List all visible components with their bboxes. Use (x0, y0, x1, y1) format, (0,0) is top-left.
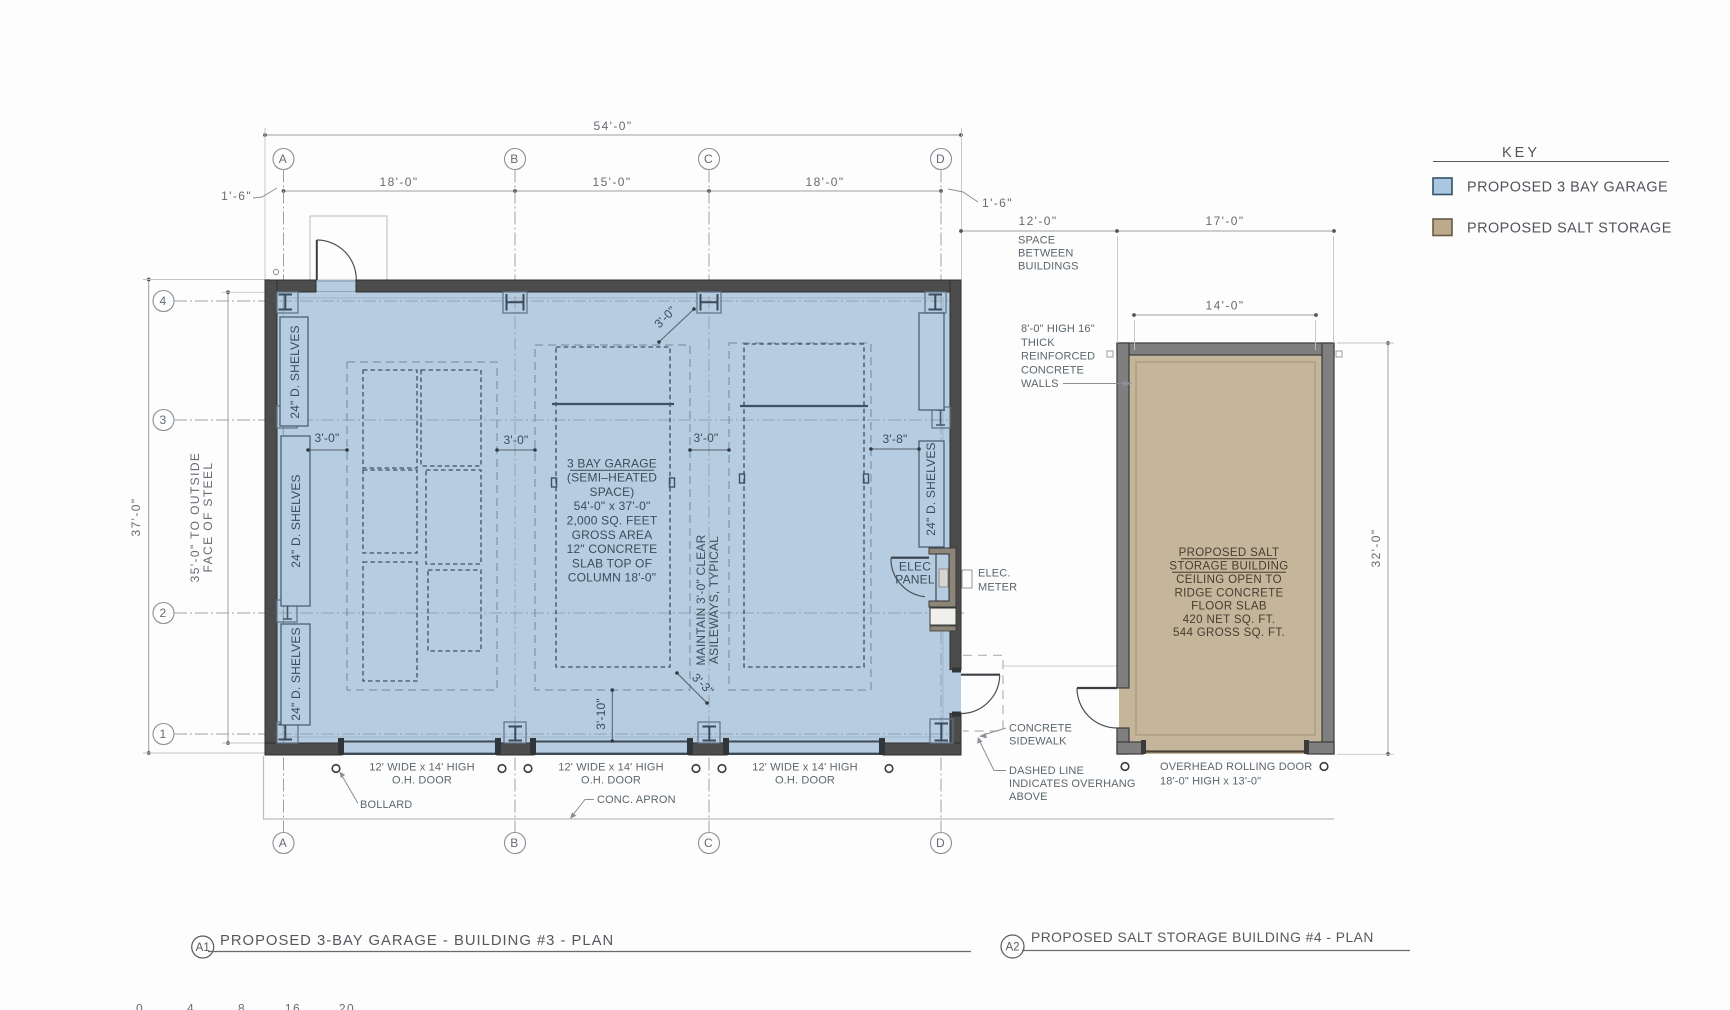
svg-text:54'-0": 54'-0" (594, 119, 633, 133)
svg-text:3'-10": 3'-10" (594, 698, 608, 730)
svg-text:24" D. SHELVES: 24" D. SHELVES (924, 442, 938, 536)
svg-text:3 BAY GARAGE: 3 BAY GARAGE (567, 456, 657, 470)
svg-text:RIDGE CONCRETE: RIDGE CONCRETE (1174, 587, 1283, 599)
svg-text:544 GROSS SQ. FT.: 544 GROSS SQ. FT. (1173, 627, 1285, 639)
svg-text:INDICATES OVERHANG: INDICATES OVERHANG (1009, 778, 1136, 790)
svg-text:O.H. DOOR: O.H. DOOR (581, 775, 641, 787)
svg-text:3'-0": 3'-0" (694, 431, 719, 445)
svg-text:2,000 SQ. FEET: 2,000 SQ. FEET (567, 514, 658, 528)
svg-text:14'-0": 14'-0" (1206, 299, 1245, 313)
svg-text:REINFORCED: REINFORCED (1021, 351, 1095, 363)
svg-text:24" D. SHELVES: 24" D. SHELVES (288, 325, 302, 419)
svg-text:15'-0": 15'-0" (593, 175, 632, 189)
svg-text:2: 2 (159, 606, 167, 620)
svg-text:8: 8 (238, 1002, 246, 1010)
svg-text:PROPOSED 3 BAY GARAGE: PROPOSED 3 BAY GARAGE (1467, 180, 1668, 196)
svg-text:BETWEEN: BETWEEN (1018, 248, 1073, 260)
svg-text:18'-0": 18'-0" (380, 175, 419, 189)
svg-text:A1: A1 (196, 942, 210, 954)
svg-text:D: D (936, 152, 946, 166)
svg-text:SPACE: SPACE (1018, 235, 1055, 247)
svg-text:16: 16 (285, 1002, 301, 1010)
svg-text:CEILING OPEN TO: CEILING OPEN TO (1176, 574, 1282, 586)
svg-text:DASHED LINE: DASHED LINE (1009, 765, 1084, 777)
svg-text:C: C (704, 152, 714, 166)
svg-text:35'-0" TO OUTSIDE: 35'-0" TO OUTSIDE (188, 452, 202, 583)
svg-text:BOLLARD: BOLLARD (360, 799, 412, 811)
svg-text:CONCRETE: CONCRETE (1021, 364, 1084, 376)
svg-text:OVERHEAD ROLLING DOOR: OVERHEAD ROLLING DOOR (1160, 761, 1312, 773)
svg-text:17'-0": 17'-0" (1206, 214, 1245, 228)
svg-text:1'-6": 1'-6" (982, 196, 1013, 210)
svg-text:A: A (279, 836, 288, 850)
svg-text:PROPOSED 3-BAY GARAGE - BUILDI: PROPOSED 3-BAY GARAGE - BUILDING #3 - PL… (220, 933, 614, 949)
svg-text:3'-0": 3'-0" (315, 431, 340, 445)
svg-text:CONC. APRON: CONC. APRON (597, 794, 676, 806)
svg-text:12" CONCRETE: 12" CONCRETE (567, 542, 658, 556)
svg-text:54'-0" x 37'-0": 54'-0" x 37'-0" (574, 499, 651, 513)
svg-text:3: 3 (159, 413, 167, 427)
svg-text:MAINTAIN 3'-0" CLEAR: MAINTAIN 3'-0" CLEAR (694, 534, 708, 665)
svg-text:COLUMN 18'-0": COLUMN 18'-0" (568, 571, 657, 585)
svg-text:18'-0" HIGH x 13'-0": 18'-0" HIGH x 13'-0" (1160, 776, 1261, 788)
svg-text:METER: METER (978, 581, 1017, 593)
svg-text:B: B (510, 836, 519, 850)
svg-text:24" D. SHELVES: 24" D. SHELVES (289, 474, 303, 568)
svg-text:THICK: THICK (1021, 337, 1055, 349)
svg-text:SLAB TOP OF: SLAB TOP OF (572, 556, 652, 570)
svg-text:SIDEWALK: SIDEWALK (1009, 736, 1067, 748)
svg-text:8'-0" HIGH 16": 8'-0" HIGH 16" (1021, 323, 1095, 335)
svg-text:KEY: KEY (1502, 145, 1540, 161)
svg-text:12' WIDE x 14' HIGH: 12' WIDE x 14' HIGH (752, 762, 857, 774)
svg-text:O.H. DOOR: O.H. DOOR (775, 775, 835, 787)
svg-text:PROPOSED SALT STORAGE BUILDING: PROPOSED SALT STORAGE BUILDING #4 - PLAN (1031, 930, 1374, 945)
svg-text:4: 4 (159, 294, 167, 308)
svg-text:A: A (279, 152, 288, 166)
svg-text:ABOVE: ABOVE (1009, 791, 1048, 803)
svg-text:18'-0": 18'-0" (806, 175, 845, 189)
svg-text:1'-6": 1'-6" (221, 189, 252, 203)
svg-text:GROSS AREA: GROSS AREA (572, 528, 653, 542)
svg-text:12' WIDE x 14' HIGH: 12' WIDE x 14' HIGH (369, 762, 474, 774)
svg-text:FACE OF STEEL: FACE OF STEEL (201, 462, 215, 573)
svg-text:CONCRETE: CONCRETE (1009, 723, 1072, 735)
svg-text:1: 1 (159, 727, 167, 741)
svg-text:PROPOSED SALT STORAGE: PROPOSED SALT STORAGE (1467, 221, 1672, 237)
svg-text:BUILDINGS: BUILDINGS (1018, 261, 1079, 273)
svg-text:STORAGE BUILDING: STORAGE BUILDING (1169, 561, 1288, 573)
svg-text:3'-0": 3'-0" (504, 433, 529, 447)
svg-text:32'-0": 32'-0" (1369, 529, 1383, 568)
svg-text:3'-8": 3'-8" (883, 432, 908, 446)
svg-text:37'-0": 37'-0" (129, 498, 143, 537)
svg-text:12' WIDE x 14' HIGH: 12' WIDE x 14' HIGH (558, 762, 663, 774)
svg-text:(SEMI–HEATED: (SEMI–HEATED (567, 471, 657, 485)
svg-text:PANEL: PANEL (895, 573, 935, 587)
svg-text:20: 20 (339, 1002, 355, 1010)
svg-text:ELEC.: ELEC. (978, 567, 1011, 579)
svg-text:4: 4 (187, 1002, 195, 1010)
svg-text:ASILEWAYS, TYPICAL: ASILEWAYS, TYPICAL (707, 536, 721, 664)
svg-text:SPACE): SPACE) (590, 485, 635, 499)
svg-text:WALLS: WALLS (1021, 378, 1059, 390)
svg-text:A2: A2 (1005, 942, 1019, 954)
svg-text:D: D (936, 836, 946, 850)
svg-text:0: 0 (136, 1002, 144, 1010)
svg-text:PROPOSED SALT: PROPOSED SALT (1179, 547, 1280, 559)
svg-text:C: C (704, 836, 714, 850)
svg-text:FLOOR SLAB: FLOOR SLAB (1191, 601, 1267, 613)
svg-text:420 NET SQ. FT.: 420 NET SQ. FT. (1183, 614, 1276, 626)
svg-text:O.H. DOOR: O.H. DOOR (392, 775, 452, 787)
svg-text:ELEC: ELEC (899, 560, 931, 574)
svg-text:24" D. SHELVES: 24" D. SHELVES (289, 627, 303, 721)
svg-text:12'-0": 12'-0" (1019, 214, 1058, 228)
svg-text:B: B (510, 152, 519, 166)
